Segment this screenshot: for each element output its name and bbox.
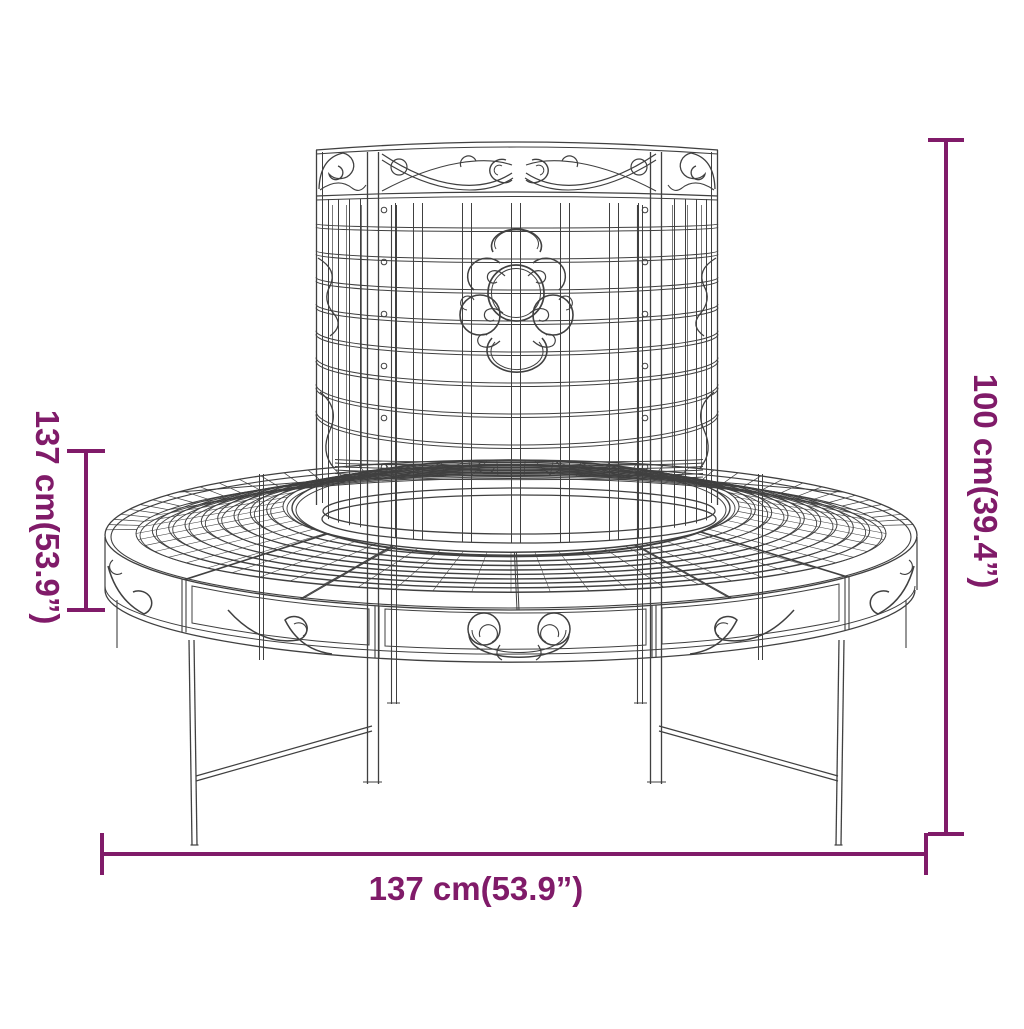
svg-text:100 cm(39.4”): 100 cm(39.4”) bbox=[967, 374, 1004, 589]
svg-text:137 cm(53.9”): 137 cm(53.9”) bbox=[29, 410, 66, 625]
svg-text:137 cm(53.9”): 137 cm(53.9”) bbox=[369, 870, 584, 907]
